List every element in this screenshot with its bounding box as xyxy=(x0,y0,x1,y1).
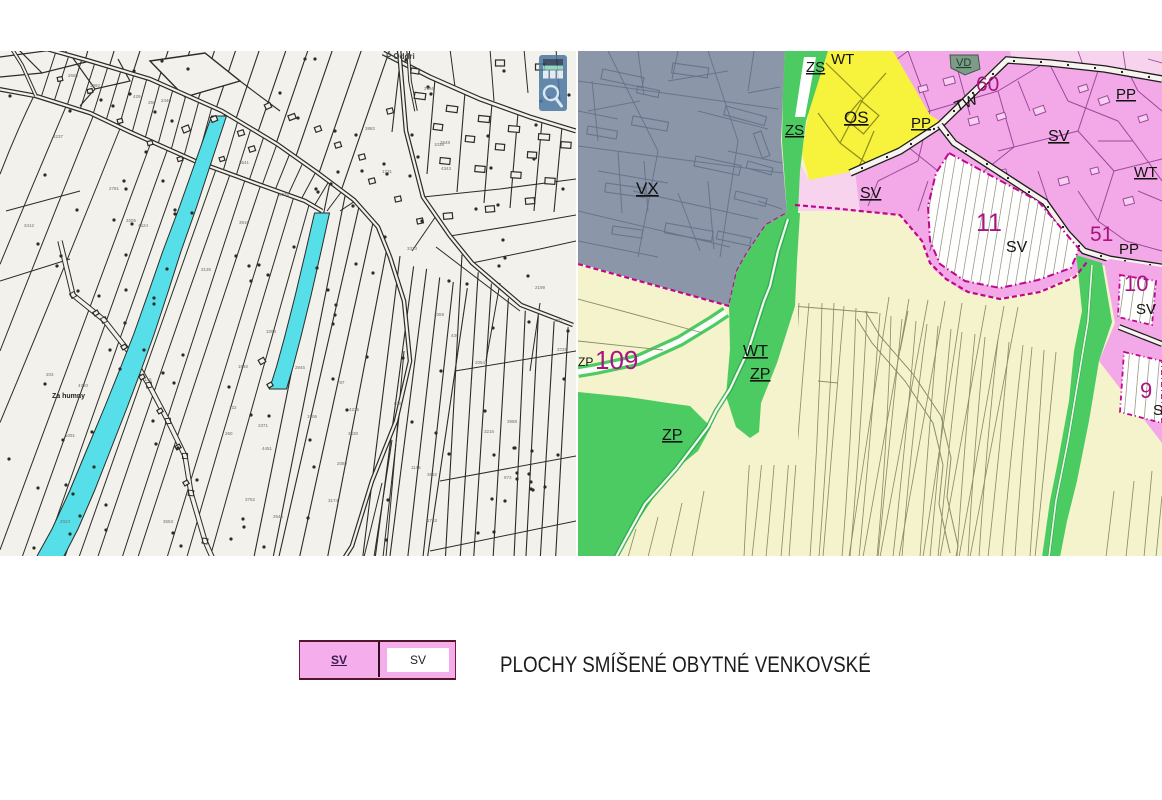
svg-text:ZS: ZS xyxy=(785,122,804,139)
svg-text:626: 626 xyxy=(394,401,402,406)
svg-text:2781: 2781 xyxy=(109,186,120,191)
svg-text:3830: 3830 xyxy=(348,431,359,436)
svg-text:4451: 4451 xyxy=(262,446,273,451)
svg-text:2655: 2655 xyxy=(68,73,79,78)
svg-text:51: 51 xyxy=(1090,223,1113,246)
svg-text:ZP: ZP xyxy=(750,366,770,383)
svg-text:Za humny: Za humny xyxy=(52,393,85,400)
svg-text:VD: VD xyxy=(956,57,971,69)
svg-text:9: 9 xyxy=(1140,378,1152,403)
svg-text:258: 258 xyxy=(148,100,156,105)
svg-text:3532: 3532 xyxy=(427,472,438,477)
svg-text:2059: 2059 xyxy=(434,312,445,317)
svg-text:3553: 3553 xyxy=(163,519,174,524)
svg-text:WT: WT xyxy=(743,343,768,360)
svg-text:4720: 4720 xyxy=(78,383,89,388)
svg-text:436: 436 xyxy=(451,333,459,338)
svg-text:1733: 1733 xyxy=(427,518,438,523)
svg-text:3882: 3882 xyxy=(365,126,376,131)
svg-text:109: 109 xyxy=(595,345,638,375)
svg-text:3135: 3135 xyxy=(201,267,212,272)
svg-text:3205: 3205 xyxy=(126,218,137,223)
svg-text:2089: 2089 xyxy=(337,461,348,466)
svg-text:PP: PP xyxy=(911,115,931,132)
svg-text:2199: 2199 xyxy=(535,285,546,290)
svg-text:4524: 4524 xyxy=(138,223,149,228)
svg-text:ZP: ZP xyxy=(578,355,593,369)
svg-text:4343: 4343 xyxy=(441,166,452,171)
svg-text:11: 11 xyxy=(976,209,1002,237)
svg-text:SV: SV xyxy=(1006,239,1028,256)
svg-text:3237: 3237 xyxy=(53,134,64,139)
svg-text:2440: 2440 xyxy=(161,98,172,103)
svg-text:722: 722 xyxy=(229,405,237,410)
svg-text:10: 10 xyxy=(1124,271,1148,296)
svg-text:3373: 3373 xyxy=(407,246,418,251)
svg-text:WT: WT xyxy=(1134,164,1157,181)
svg-text:145: 145 xyxy=(144,377,152,382)
svg-text:SV: SV xyxy=(1136,301,1156,318)
svg-text:2371: 2371 xyxy=(258,423,269,428)
svg-text:2054: 2054 xyxy=(475,360,486,365)
svg-text:P Oddri: P Oddri xyxy=(386,52,415,61)
svg-text:2648: 2648 xyxy=(440,140,451,145)
svg-text:3327: 3327 xyxy=(553,318,564,323)
svg-text:3725: 3725 xyxy=(557,347,568,352)
svg-text:2546: 2546 xyxy=(273,514,284,519)
svg-text:1906: 1906 xyxy=(307,414,318,419)
svg-text:3541: 3541 xyxy=(239,160,250,165)
svg-text:ZP: ZP xyxy=(662,427,682,444)
svg-text:S: S xyxy=(1153,402,1162,419)
svg-text:1731: 1731 xyxy=(382,169,393,174)
svg-text:OS: OS xyxy=(844,108,869,127)
svg-text:SV: SV xyxy=(1048,128,1070,145)
svg-text:60: 60 xyxy=(976,73,999,96)
svg-text:1692: 1692 xyxy=(238,364,249,369)
svg-text:4235: 4235 xyxy=(349,407,360,412)
svg-text:VX: VX xyxy=(636,179,659,198)
svg-text:ZS: ZS xyxy=(806,59,825,76)
svg-text:3992: 3992 xyxy=(90,83,101,88)
svg-text:PP: PP xyxy=(1119,241,1139,258)
svg-text:SV: SV xyxy=(860,185,882,202)
svg-text:1094: 1094 xyxy=(266,329,277,334)
svg-text:3752: 3752 xyxy=(245,497,256,502)
svg-text:973: 973 xyxy=(504,475,512,480)
svg-text:3216: 3216 xyxy=(484,429,495,434)
svg-text:WT: WT xyxy=(831,51,854,68)
svg-text:2966: 2966 xyxy=(424,86,435,91)
svg-text:787: 787 xyxy=(337,380,345,385)
svg-text:203: 203 xyxy=(46,372,54,377)
svg-text:429: 429 xyxy=(133,94,141,99)
svg-text:3174: 3174 xyxy=(328,498,339,503)
svg-text:4078: 4078 xyxy=(279,192,290,197)
svg-text:3916: 3916 xyxy=(239,220,250,225)
svg-text:3412: 3412 xyxy=(24,223,35,228)
svg-text:1145: 1145 xyxy=(411,465,421,470)
svg-text:3988: 3988 xyxy=(507,419,518,424)
svg-text:2845: 2845 xyxy=(295,365,306,370)
svg-text:260: 260 xyxy=(225,431,233,436)
svg-text:1091: 1091 xyxy=(65,433,76,438)
svg-text:2024: 2024 xyxy=(60,519,71,524)
svg-text:PP: PP xyxy=(1116,86,1136,103)
